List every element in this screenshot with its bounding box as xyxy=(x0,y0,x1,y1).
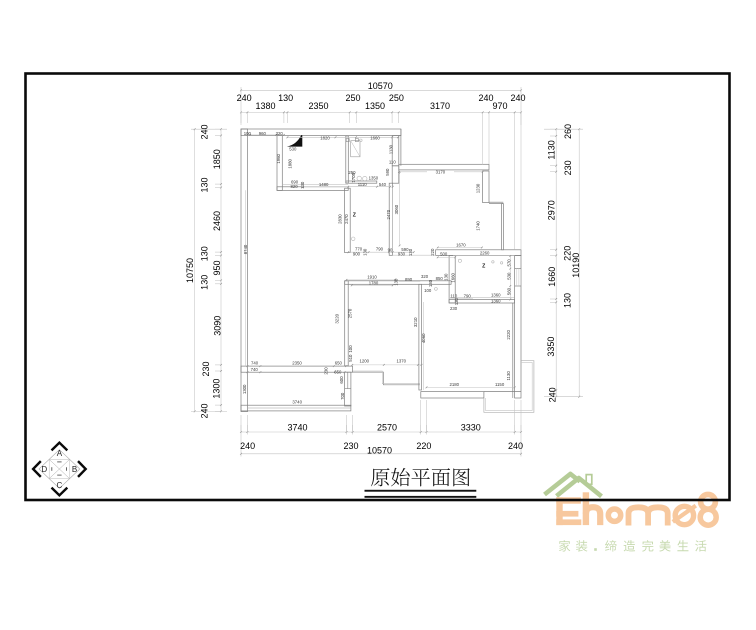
svg-text:1820: 1820 xyxy=(320,135,330,140)
svg-text:570: 570 xyxy=(506,259,511,267)
svg-text:3740: 3740 xyxy=(292,399,302,404)
svg-text:1740: 1740 xyxy=(476,221,481,231)
svg-text:230: 230 xyxy=(563,160,573,175)
svg-text:110: 110 xyxy=(389,160,396,165)
svg-text:740: 740 xyxy=(251,367,259,372)
svg-text:1230: 1230 xyxy=(476,183,481,193)
svg-text:130: 130 xyxy=(394,278,399,286)
svg-text:D: D xyxy=(41,465,47,474)
svg-text:2460: 2460 xyxy=(212,211,222,231)
svg-text:2350: 2350 xyxy=(308,101,328,111)
svg-text:3090: 3090 xyxy=(213,316,223,336)
svg-text:1200: 1200 xyxy=(360,359,370,364)
svg-text:130: 130 xyxy=(200,275,210,290)
svg-text:3350: 3350 xyxy=(546,337,556,357)
svg-text:230: 230 xyxy=(343,441,358,451)
svg-text:560: 560 xyxy=(506,287,511,295)
svg-text:10190: 10190 xyxy=(571,253,581,278)
svg-text:A: A xyxy=(57,449,63,458)
svg-text:10750: 10750 xyxy=(185,258,195,283)
svg-text:1130: 1130 xyxy=(547,140,557,159)
svg-text:820: 820 xyxy=(291,184,299,189)
svg-text:110: 110 xyxy=(450,293,457,298)
svg-text:240: 240 xyxy=(508,441,523,451)
svg-text:700: 700 xyxy=(340,392,345,400)
svg-text:240: 240 xyxy=(237,93,252,103)
svg-text:1880: 1880 xyxy=(288,159,293,169)
svg-text:130: 130 xyxy=(278,93,293,103)
svg-text:790: 790 xyxy=(464,293,472,298)
svg-text:1850: 1850 xyxy=(212,149,222,169)
svg-text:90: 90 xyxy=(388,248,393,253)
svg-text:220: 220 xyxy=(563,246,573,261)
svg-text:1660: 1660 xyxy=(450,273,455,283)
svg-text:240: 240 xyxy=(510,93,525,103)
svg-text:2970: 2970 xyxy=(547,200,557,220)
svg-text:230: 230 xyxy=(201,361,211,376)
svg-text:260: 260 xyxy=(563,124,573,139)
svg-text:2470: 2470 xyxy=(386,209,391,219)
svg-text:3220: 3220 xyxy=(334,313,339,323)
svg-text:230: 230 xyxy=(450,306,458,311)
svg-text:1130: 1130 xyxy=(388,144,393,154)
svg-text:130: 130 xyxy=(200,177,210,192)
svg-text:950: 950 xyxy=(212,260,222,275)
svg-text:500: 500 xyxy=(440,252,448,257)
svg-text:130: 130 xyxy=(454,298,459,306)
svg-text:1370: 1370 xyxy=(397,359,407,364)
svg-text:960: 960 xyxy=(259,131,267,136)
svg-text:1910: 1910 xyxy=(367,275,377,280)
svg-text:100: 100 xyxy=(244,131,252,136)
svg-text:970: 970 xyxy=(492,101,507,111)
svg-text:130: 130 xyxy=(200,246,210,261)
svg-text:130: 130 xyxy=(428,279,433,287)
svg-text:100: 100 xyxy=(424,288,432,293)
svg-text:790: 790 xyxy=(376,246,384,251)
svg-text:240: 240 xyxy=(200,403,210,418)
svg-text:1360: 1360 xyxy=(491,293,501,298)
svg-text:320: 320 xyxy=(276,131,284,136)
svg-text:8740: 8740 xyxy=(243,244,248,254)
svg-text:130: 130 xyxy=(300,181,305,189)
svg-text:1110: 1110 xyxy=(358,182,368,187)
svg-text:10570: 10570 xyxy=(367,445,392,455)
svg-text:2830: 2830 xyxy=(337,214,342,224)
svg-text:1300: 1300 xyxy=(212,379,222,399)
svg-text:2220: 2220 xyxy=(506,330,511,340)
svg-text:130: 130 xyxy=(408,248,413,256)
svg-text:130: 130 xyxy=(563,293,573,308)
svg-text:850: 850 xyxy=(436,276,444,281)
svg-text:590: 590 xyxy=(385,168,390,176)
svg-text:600: 600 xyxy=(339,376,344,384)
svg-text:220: 220 xyxy=(416,441,431,451)
svg-text:250: 250 xyxy=(389,93,404,103)
svg-text:3170: 3170 xyxy=(436,169,446,174)
svg-text:240: 240 xyxy=(200,124,210,139)
svg-text:2470: 2470 xyxy=(344,214,349,224)
svg-text:C: C xyxy=(57,481,63,490)
svg-text:930: 930 xyxy=(398,252,406,257)
svg-text:B: B xyxy=(72,465,77,474)
svg-text:3740: 3740 xyxy=(287,423,307,433)
svg-text:1660: 1660 xyxy=(370,135,380,140)
svg-text:100: 100 xyxy=(348,345,353,353)
svg-text:1705: 1705 xyxy=(351,172,356,182)
svg-text:510: 510 xyxy=(348,354,353,362)
svg-text:540: 540 xyxy=(379,182,387,187)
svg-text:3170: 3170 xyxy=(430,101,450,111)
svg-text:2570: 2570 xyxy=(377,423,397,433)
svg-text:2350: 2350 xyxy=(292,361,302,366)
svg-text:3210: 3210 xyxy=(413,317,418,327)
svg-text:4060: 4060 xyxy=(421,333,426,343)
svg-text:250: 250 xyxy=(345,93,360,103)
svg-text:3330: 3330 xyxy=(461,423,481,433)
svg-text:1300: 1300 xyxy=(242,384,247,394)
svg-text:10570: 10570 xyxy=(368,81,393,91)
svg-text:900: 900 xyxy=(353,251,361,256)
svg-text:240: 240 xyxy=(478,93,493,103)
svg-text:1670: 1670 xyxy=(456,242,466,247)
svg-text:1360: 1360 xyxy=(491,299,501,304)
svg-text:1960: 1960 xyxy=(276,154,281,164)
svg-text:240: 240 xyxy=(240,441,255,451)
svg-text:890: 890 xyxy=(405,277,413,282)
svg-text:320: 320 xyxy=(421,274,429,279)
svg-text:130: 130 xyxy=(444,273,449,281)
svg-text:530: 530 xyxy=(289,146,297,151)
svg-text:650: 650 xyxy=(334,370,342,375)
svg-text:2180: 2180 xyxy=(450,382,460,387)
svg-text:2260: 2260 xyxy=(480,250,490,255)
svg-text:1660: 1660 xyxy=(547,267,557,287)
svg-text:740: 740 xyxy=(251,361,259,366)
svg-text:1380: 1380 xyxy=(255,101,275,111)
svg-text:1130: 1130 xyxy=(506,371,511,381)
svg-text:1150: 1150 xyxy=(495,382,505,387)
svg-text:530: 530 xyxy=(506,272,511,280)
svg-text:230: 230 xyxy=(324,367,329,375)
svg-text:220: 220 xyxy=(430,248,435,256)
svg-text:1480: 1480 xyxy=(319,182,329,187)
svg-text:1350: 1350 xyxy=(365,101,385,111)
svg-text:650: 650 xyxy=(335,361,343,366)
svg-text:1780: 1780 xyxy=(369,281,379,286)
svg-text:240: 240 xyxy=(548,387,558,402)
svg-text:2570: 2570 xyxy=(348,308,353,318)
svg-text:3060: 3060 xyxy=(394,204,399,214)
svg-text:130: 130 xyxy=(363,248,368,256)
svg-text:1350: 1350 xyxy=(369,176,379,181)
